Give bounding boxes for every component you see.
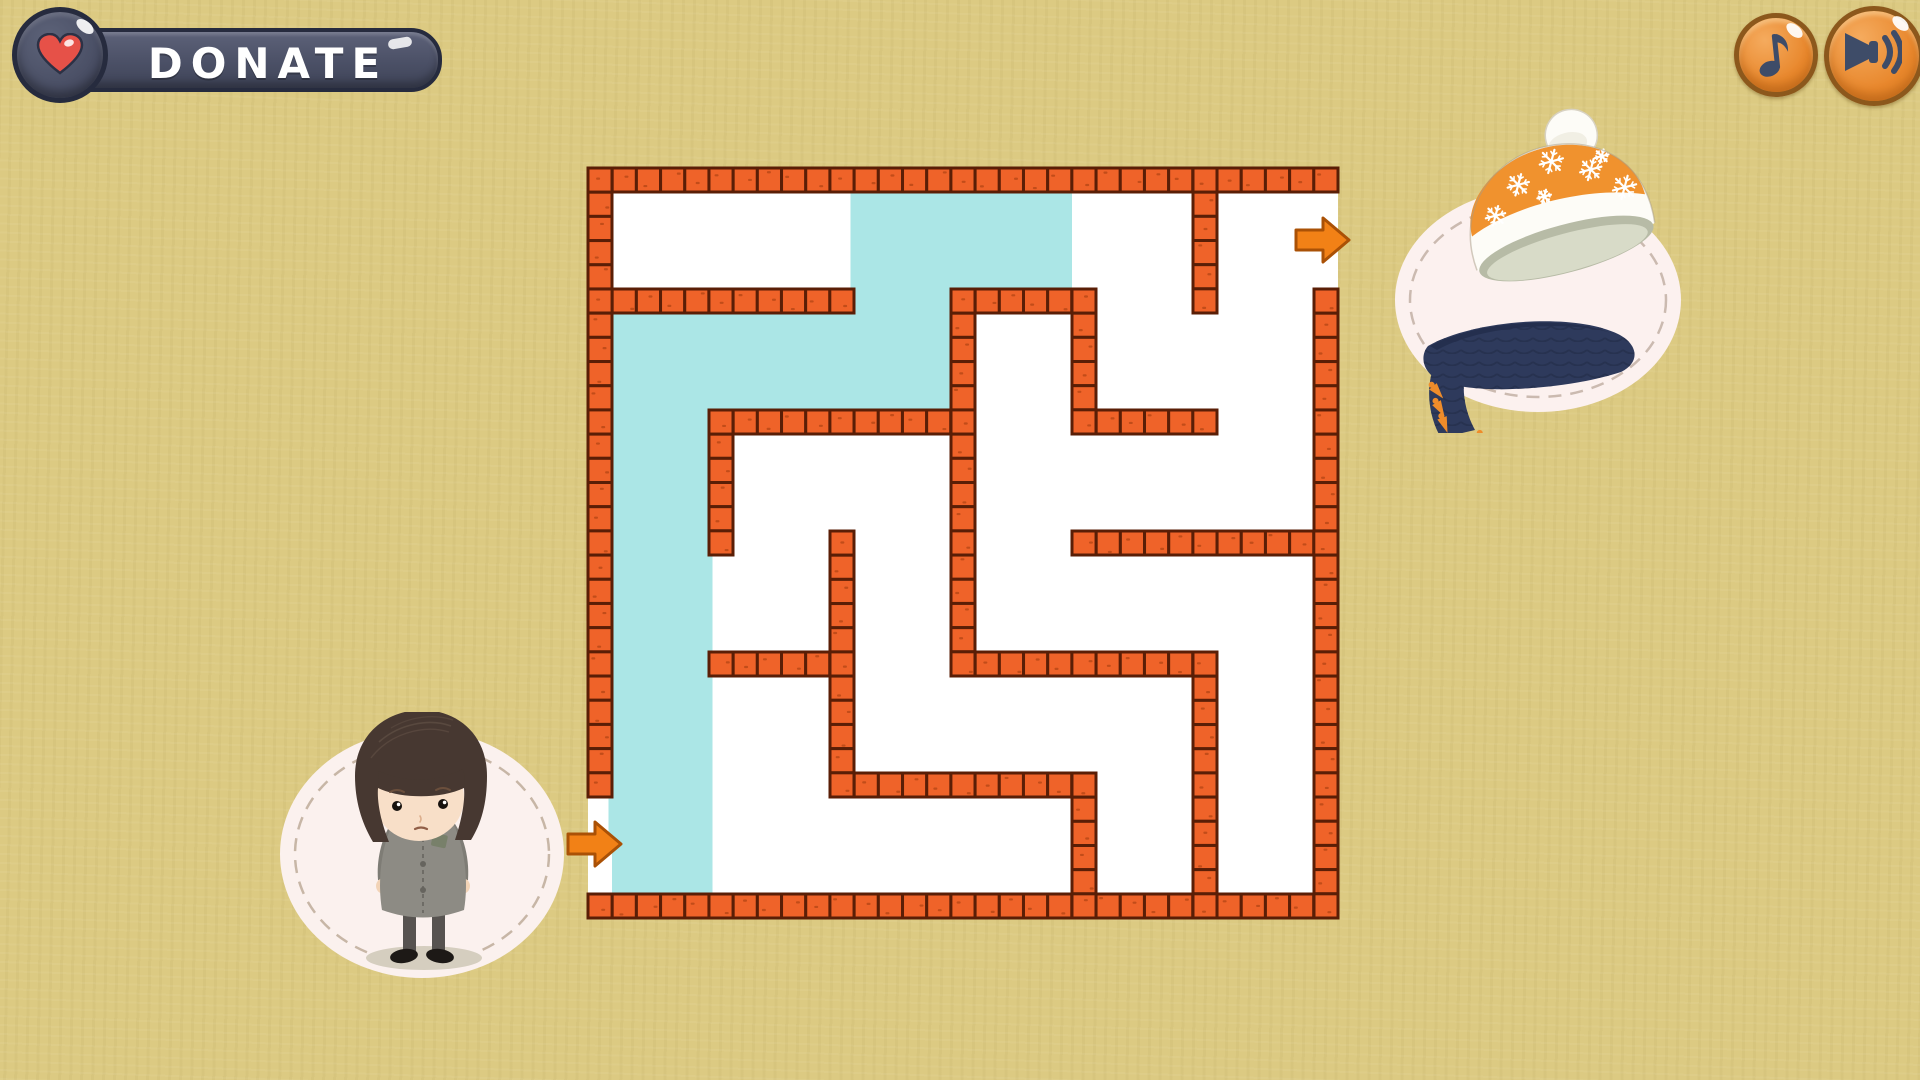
girl-character[interactable] (270, 712, 580, 1007)
heart-badge (12, 7, 108, 103)
donate-button[interactable]: DONATE (12, 7, 442, 103)
scarf (1423, 321, 1634, 433)
music-note-icon (1754, 26, 1798, 78)
maze-walls-and-path (568, 168, 1349, 918)
prize-target[interactable] (1365, 88, 1710, 433)
heart-icon (36, 33, 84, 77)
donate-label: DONATE (108, 39, 428, 88)
girl-head (355, 712, 487, 842)
game-screen: DONATE (0, 0, 1920, 1080)
girl-shadow (366, 946, 482, 970)
sound-button[interactable] (1824, 6, 1920, 106)
music-button[interactable] (1734, 13, 1818, 97)
speaker-icon (1842, 26, 1902, 78)
